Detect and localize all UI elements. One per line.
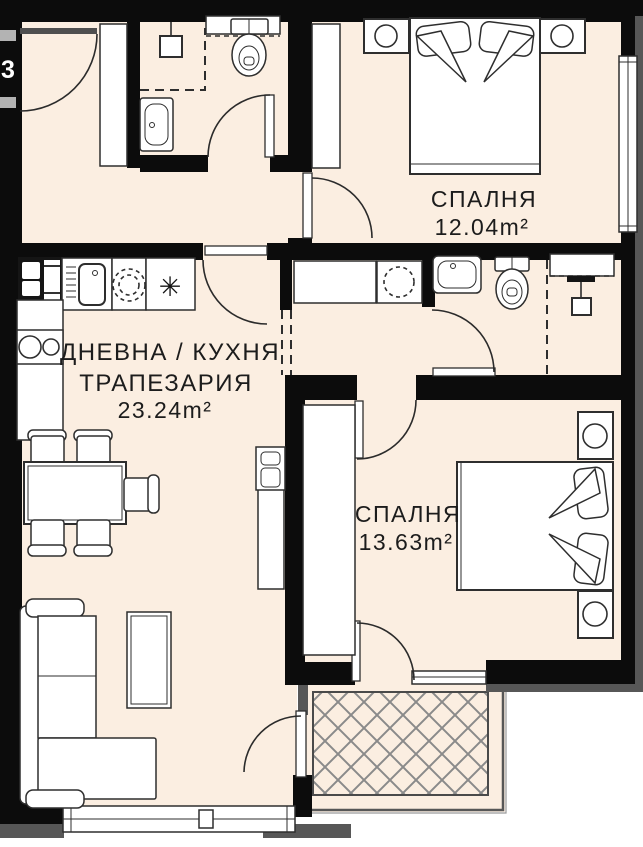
wall-corridor-living [280,260,292,310]
freezer-symbol: ✳ [159,272,182,302]
wall-hall-kitchen-post [267,243,288,260]
nightstand [578,591,613,638]
wall-corridor-bottom-left [285,375,357,400]
entrance-door-leaf [20,28,97,34]
hob-icon [17,330,63,364]
wardrobe [303,405,355,655]
window-mullion [199,810,213,828]
tv-cabinet [256,447,285,589]
fridge-icon [18,257,63,303]
washbasin-icon [140,98,173,151]
trim-bottom-left [0,824,64,838]
freezer-icon: ✳ [146,258,195,310]
terrace [298,685,506,813]
wardrobe [312,24,340,168]
door-jamb-mark [0,30,16,41]
wall-bath1-bottom [140,155,208,172]
shower-head-icon [572,298,591,315]
bedroom2-terrace-glazing [412,671,486,684]
toilet-icon [495,257,529,309]
living-room-window [63,806,295,832]
terrace-hatch [313,692,488,795]
built-in-appliance-icon [112,258,146,310]
chair [148,475,159,513]
toilet-icon [231,19,268,76]
hall-wardrobe [100,24,127,166]
corridor [294,261,422,303]
chair [74,545,112,556]
nightstand [540,19,585,53]
bedroom1-window [619,56,637,232]
kitchen-counter-left [17,300,63,440]
bedroom2-area: 13.63m² [359,529,454,555]
wall-bedroom2-bottom-right [486,660,621,684]
dining-table [24,462,126,524]
double-bed-icon [457,462,613,590]
living-label-line2: ТРАПЕЗАРИЯ [79,370,253,397]
living-area: 23.24m² [118,397,213,423]
double-bed-icon [410,18,540,174]
washing-machine-icon [377,261,422,303]
hall [100,24,127,166]
wall-living-bedroom2 [285,400,305,662]
living-label-line1: ДНЕВНА / КУХНЯ [60,339,280,366]
washbasin-icon [433,256,481,293]
bedroom1-area: 12.04m² [435,214,530,240]
door-jamb-mark [0,97,16,108]
bedroom2-label: СПАЛНЯ [355,501,461,527]
wall-hall-bath [127,22,140,168]
wall-living-bottom-post [293,775,312,817]
kitchen-sink-icon [62,258,112,310]
wall-main-vertical-upper [288,22,312,172]
nightstand [364,19,409,53]
floor-plan: ✳ [0,0,643,847]
nightstand [578,412,613,459]
wall-bedroom2-bottom-left [285,662,355,685]
unit-number: 3 [1,56,15,84]
trim-bedroom2-bottom [486,684,643,692]
chair [28,545,66,556]
coffee-table [127,612,171,708]
corridor-closet [294,261,376,303]
wall-corridor-bottom-right [416,375,621,400]
bedroom1-label: СПАЛНЯ [431,186,537,212]
shower-head-icon [160,36,182,57]
